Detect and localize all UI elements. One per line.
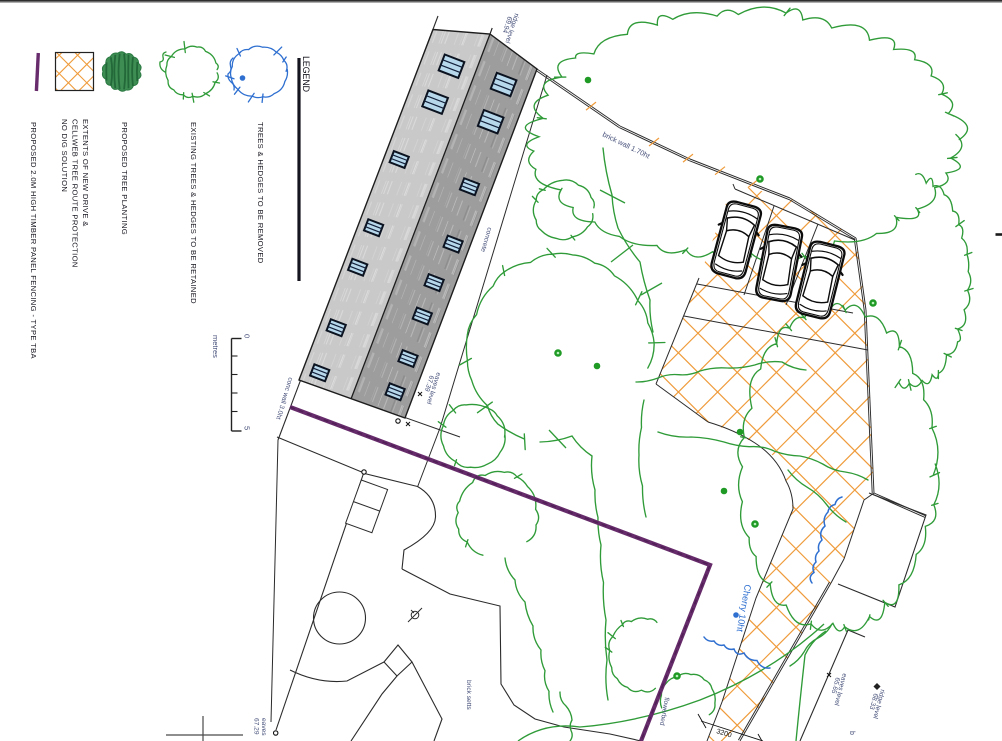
svg-text:PROPOSED TREE PLANTING: PROPOSED TREE PLANTING bbox=[120, 122, 129, 235]
svg-text:5: 5 bbox=[243, 426, 252, 430]
svg-text:PROPOSED 2.0M HIGH TIMBER PANE: PROPOSED 2.0M HIGH TIMBER PANEL FENCING … bbox=[29, 122, 38, 360]
svg-text:EXISTING TREES & HEDGES TO BE: EXISTING TREES & HEDGES TO BE RETAINED bbox=[189, 122, 198, 304]
svg-text:0: 0 bbox=[243, 334, 252, 338]
svg-text:eaves: eaves bbox=[260, 718, 267, 736]
svg-text:LEGEND: LEGEND bbox=[301, 56, 311, 93]
svg-text:CELLWEB TREE ROUTE PROTECTION: CELLWEB TREE ROUTE PROTECTION bbox=[71, 119, 80, 268]
svg-text:b: b bbox=[848, 731, 855, 735]
svg-text:NO DIG SOLUTION: NO DIG SOLUTION bbox=[60, 119, 69, 192]
svg-text:67.29: 67.29 bbox=[253, 718, 260, 735]
svg-text:brick setts: brick setts bbox=[465, 680, 472, 710]
svg-text:EXTENTS OF NEW DRIVE &: EXTENTS OF NEW DRIVE & bbox=[81, 119, 90, 227]
svg-text:TREES & HEDGES TO BE REMOVED: TREES & HEDGES TO BE REMOVED bbox=[256, 122, 265, 264]
svg-text:metres: metres bbox=[211, 335, 220, 358]
